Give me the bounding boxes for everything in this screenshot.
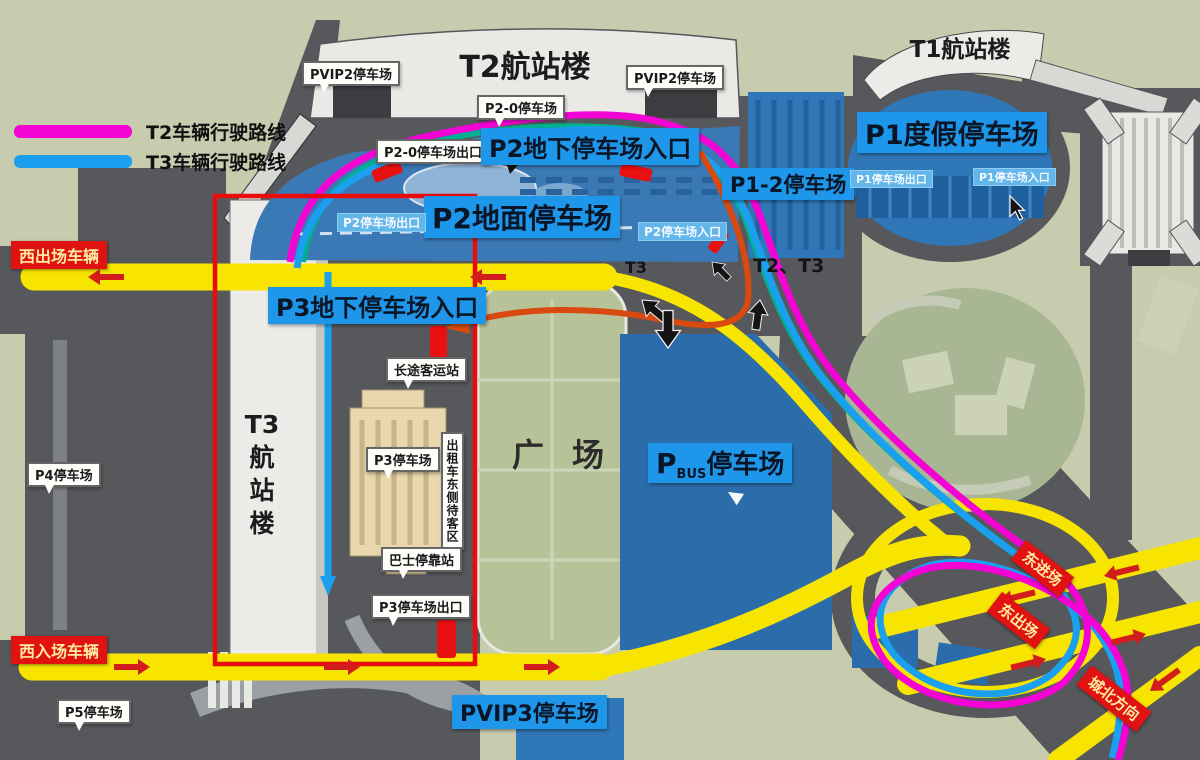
p2-exit-sign: P2停车场出口 bbox=[337, 213, 426, 232]
p2-0-exit-bubble: P2-0停车场出口 bbox=[376, 139, 490, 164]
legend-label-t2-route: T2车辆行驶路线 bbox=[146, 118, 286, 145]
taxi-wait-area-bubble: 出租车东侧待客区 bbox=[441, 432, 464, 550]
pbus-subscript: BUS bbox=[677, 467, 707, 482]
p3-bubble: P3停车场 bbox=[366, 447, 440, 472]
bus-stop-bubble: 巴士停靠站 bbox=[381, 547, 462, 572]
p1-2-lot-banner: P1-2停车场 bbox=[722, 168, 854, 200]
p1-exit-sign: P1停车场出口 bbox=[850, 170, 933, 188]
t2-t3-road-label: T2、T3 bbox=[753, 251, 824, 278]
t3-road-label: T3 bbox=[625, 258, 647, 277]
p2-0-bubble: P2-0停车场 bbox=[477, 95, 565, 120]
p1-entrance-sign: P1停车场入口 bbox=[973, 168, 1056, 186]
plaza-label: 广场 bbox=[512, 430, 632, 476]
west-entrance-badge: 西入场车辆 bbox=[11, 636, 107, 664]
pvip3-lot-banner: PVIP3停车场 bbox=[452, 695, 607, 729]
landscape-island bbox=[845, 275, 1199, 512]
pvip2-left-bubble: PVIP2停车场 bbox=[302, 61, 400, 86]
legend-row-t3: T3车辆行驶路线 bbox=[14, 148, 286, 175]
p5-bubble: P5停车场 bbox=[57, 699, 131, 724]
t3-label-line4: 楼 bbox=[240, 507, 284, 540]
pbus-suffix: 停车场 bbox=[706, 450, 784, 480]
airport-parking-map: T2车辆行驶路线 T3车辆行驶路线 T2航站楼 T1航站楼 T3 航 站 楼 P… bbox=[0, 0, 1200, 760]
pbus-prefix: P bbox=[656, 447, 677, 480]
t3-terminal-label: T3 航 站 楼 bbox=[240, 408, 284, 540]
p3-exit-bubble: P3停车场出口 bbox=[371, 594, 471, 619]
t3-label-line2: 航 bbox=[240, 441, 284, 474]
t3-label-line1: T3 bbox=[240, 408, 284, 441]
p2-underground-entrance-banner: P2地下停车场入口 bbox=[481, 128, 699, 165]
legend-swatch-t3-route bbox=[14, 155, 132, 168]
t1-terminal-label: T1航站楼 bbox=[880, 30, 1040, 64]
legend-label-t3-route: T3车辆行驶路线 bbox=[146, 148, 286, 175]
legend-row-t2: T2车辆行驶路线 bbox=[14, 118, 286, 145]
legend-swatch-t2-route bbox=[14, 125, 132, 138]
t2-terminal-label: T2航站楼 bbox=[420, 42, 630, 86]
t3-label-line3: 站 bbox=[240, 474, 284, 507]
p2-ground-lot-banner: P2地面停车场 bbox=[424, 196, 620, 238]
p1-holiday-lot-banner: P1度假停车场 bbox=[857, 112, 1047, 153]
p2-entrance-sign: P2停车场入口 bbox=[638, 222, 727, 241]
long-distance-bus-bubble: 长途客运站 bbox=[386, 357, 467, 382]
p4-bubble: P4停车场 bbox=[27, 462, 101, 487]
pbus-lot-banner: PBUS停车场 bbox=[648, 443, 792, 483]
pvip2-right-bubble: PVIP2停车场 bbox=[626, 65, 724, 90]
p3-underground-entrance-banner: P3地下停车场入口 bbox=[268, 287, 486, 324]
west-exit-badge: 西出场车辆 bbox=[11, 241, 107, 269]
